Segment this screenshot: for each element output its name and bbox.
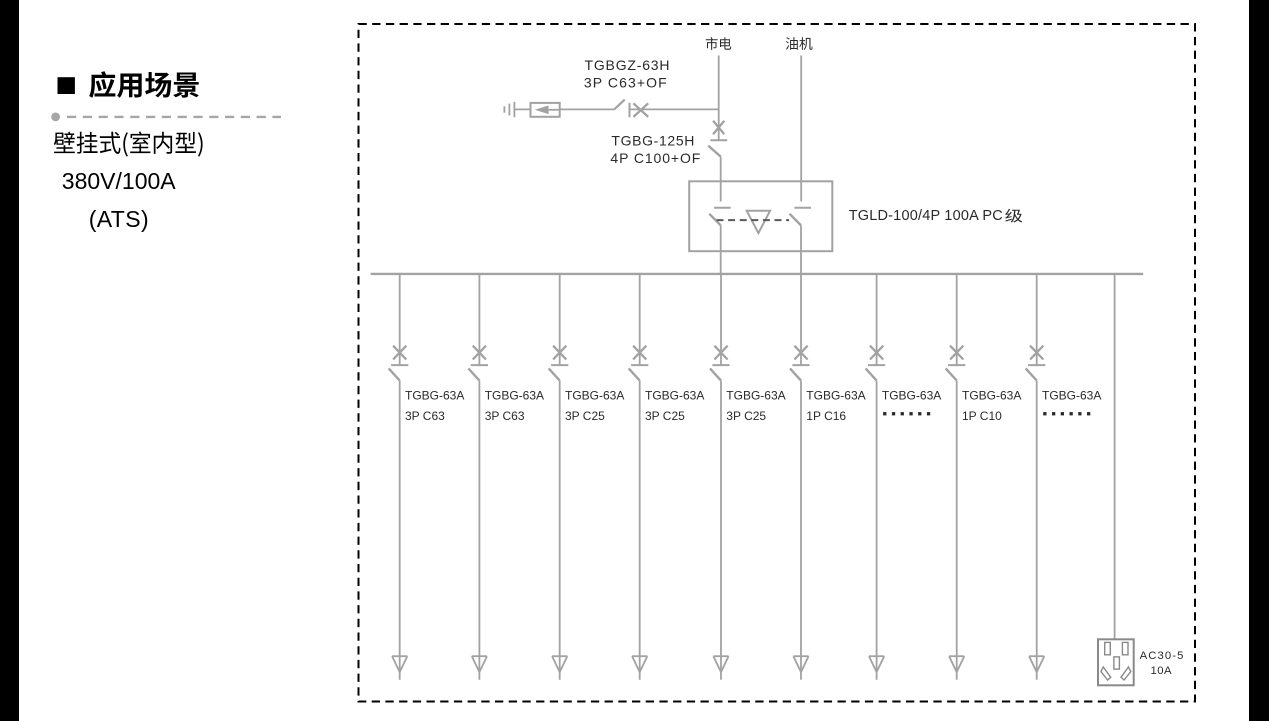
svg-text:(ATS): (ATS) xyxy=(89,206,149,232)
svg-text:1P C16: 1P C16 xyxy=(806,409,846,423)
svg-text:TGBG-63A: TGBG-63A xyxy=(485,389,544,403)
svg-text:1P C10: 1P C10 xyxy=(962,409,1002,423)
svg-text:TGBG-63A: TGBG-63A xyxy=(645,389,704,403)
svg-text:TGBG-63A: TGBG-63A xyxy=(565,389,624,403)
svg-text:10A: 10A xyxy=(1151,665,1172,677)
svg-text:TGBGZ-63H: TGBGZ-63H xyxy=(585,57,671,73)
svg-text:3P C25: 3P C25 xyxy=(726,409,766,423)
svg-text:TGBG-63A: TGBG-63A xyxy=(962,389,1021,403)
svg-text:AC30-5: AC30-5 xyxy=(1140,650,1185,662)
svg-text:TGLD-100/4P 100A PC: TGLD-100/4P 100A PC xyxy=(849,208,1003,224)
svg-text:TGBG-63A: TGBG-63A xyxy=(1042,389,1101,403)
svg-text:TGBG-63A: TGBG-63A xyxy=(726,389,785,403)
svg-text:TGBG-63A: TGBG-63A xyxy=(405,389,464,403)
svg-text:3P C63: 3P C63 xyxy=(485,409,525,423)
svg-text:380V/100A: 380V/100A xyxy=(62,168,176,194)
svg-text:TGBG-63A: TGBG-63A xyxy=(882,389,941,403)
svg-text:3P C63: 3P C63 xyxy=(405,409,445,423)
svg-text:3P C25: 3P C25 xyxy=(565,409,605,423)
svg-text:4P C100+OF: 4P C100+OF xyxy=(610,150,701,166)
svg-text:TGBG-63A: TGBG-63A xyxy=(806,389,865,403)
svg-text:3P C25: 3P C25 xyxy=(645,409,685,423)
svg-text:TGBG-125H: TGBG-125H xyxy=(611,132,695,148)
svg-text:3P C63+OF: 3P C63+OF xyxy=(584,75,668,91)
